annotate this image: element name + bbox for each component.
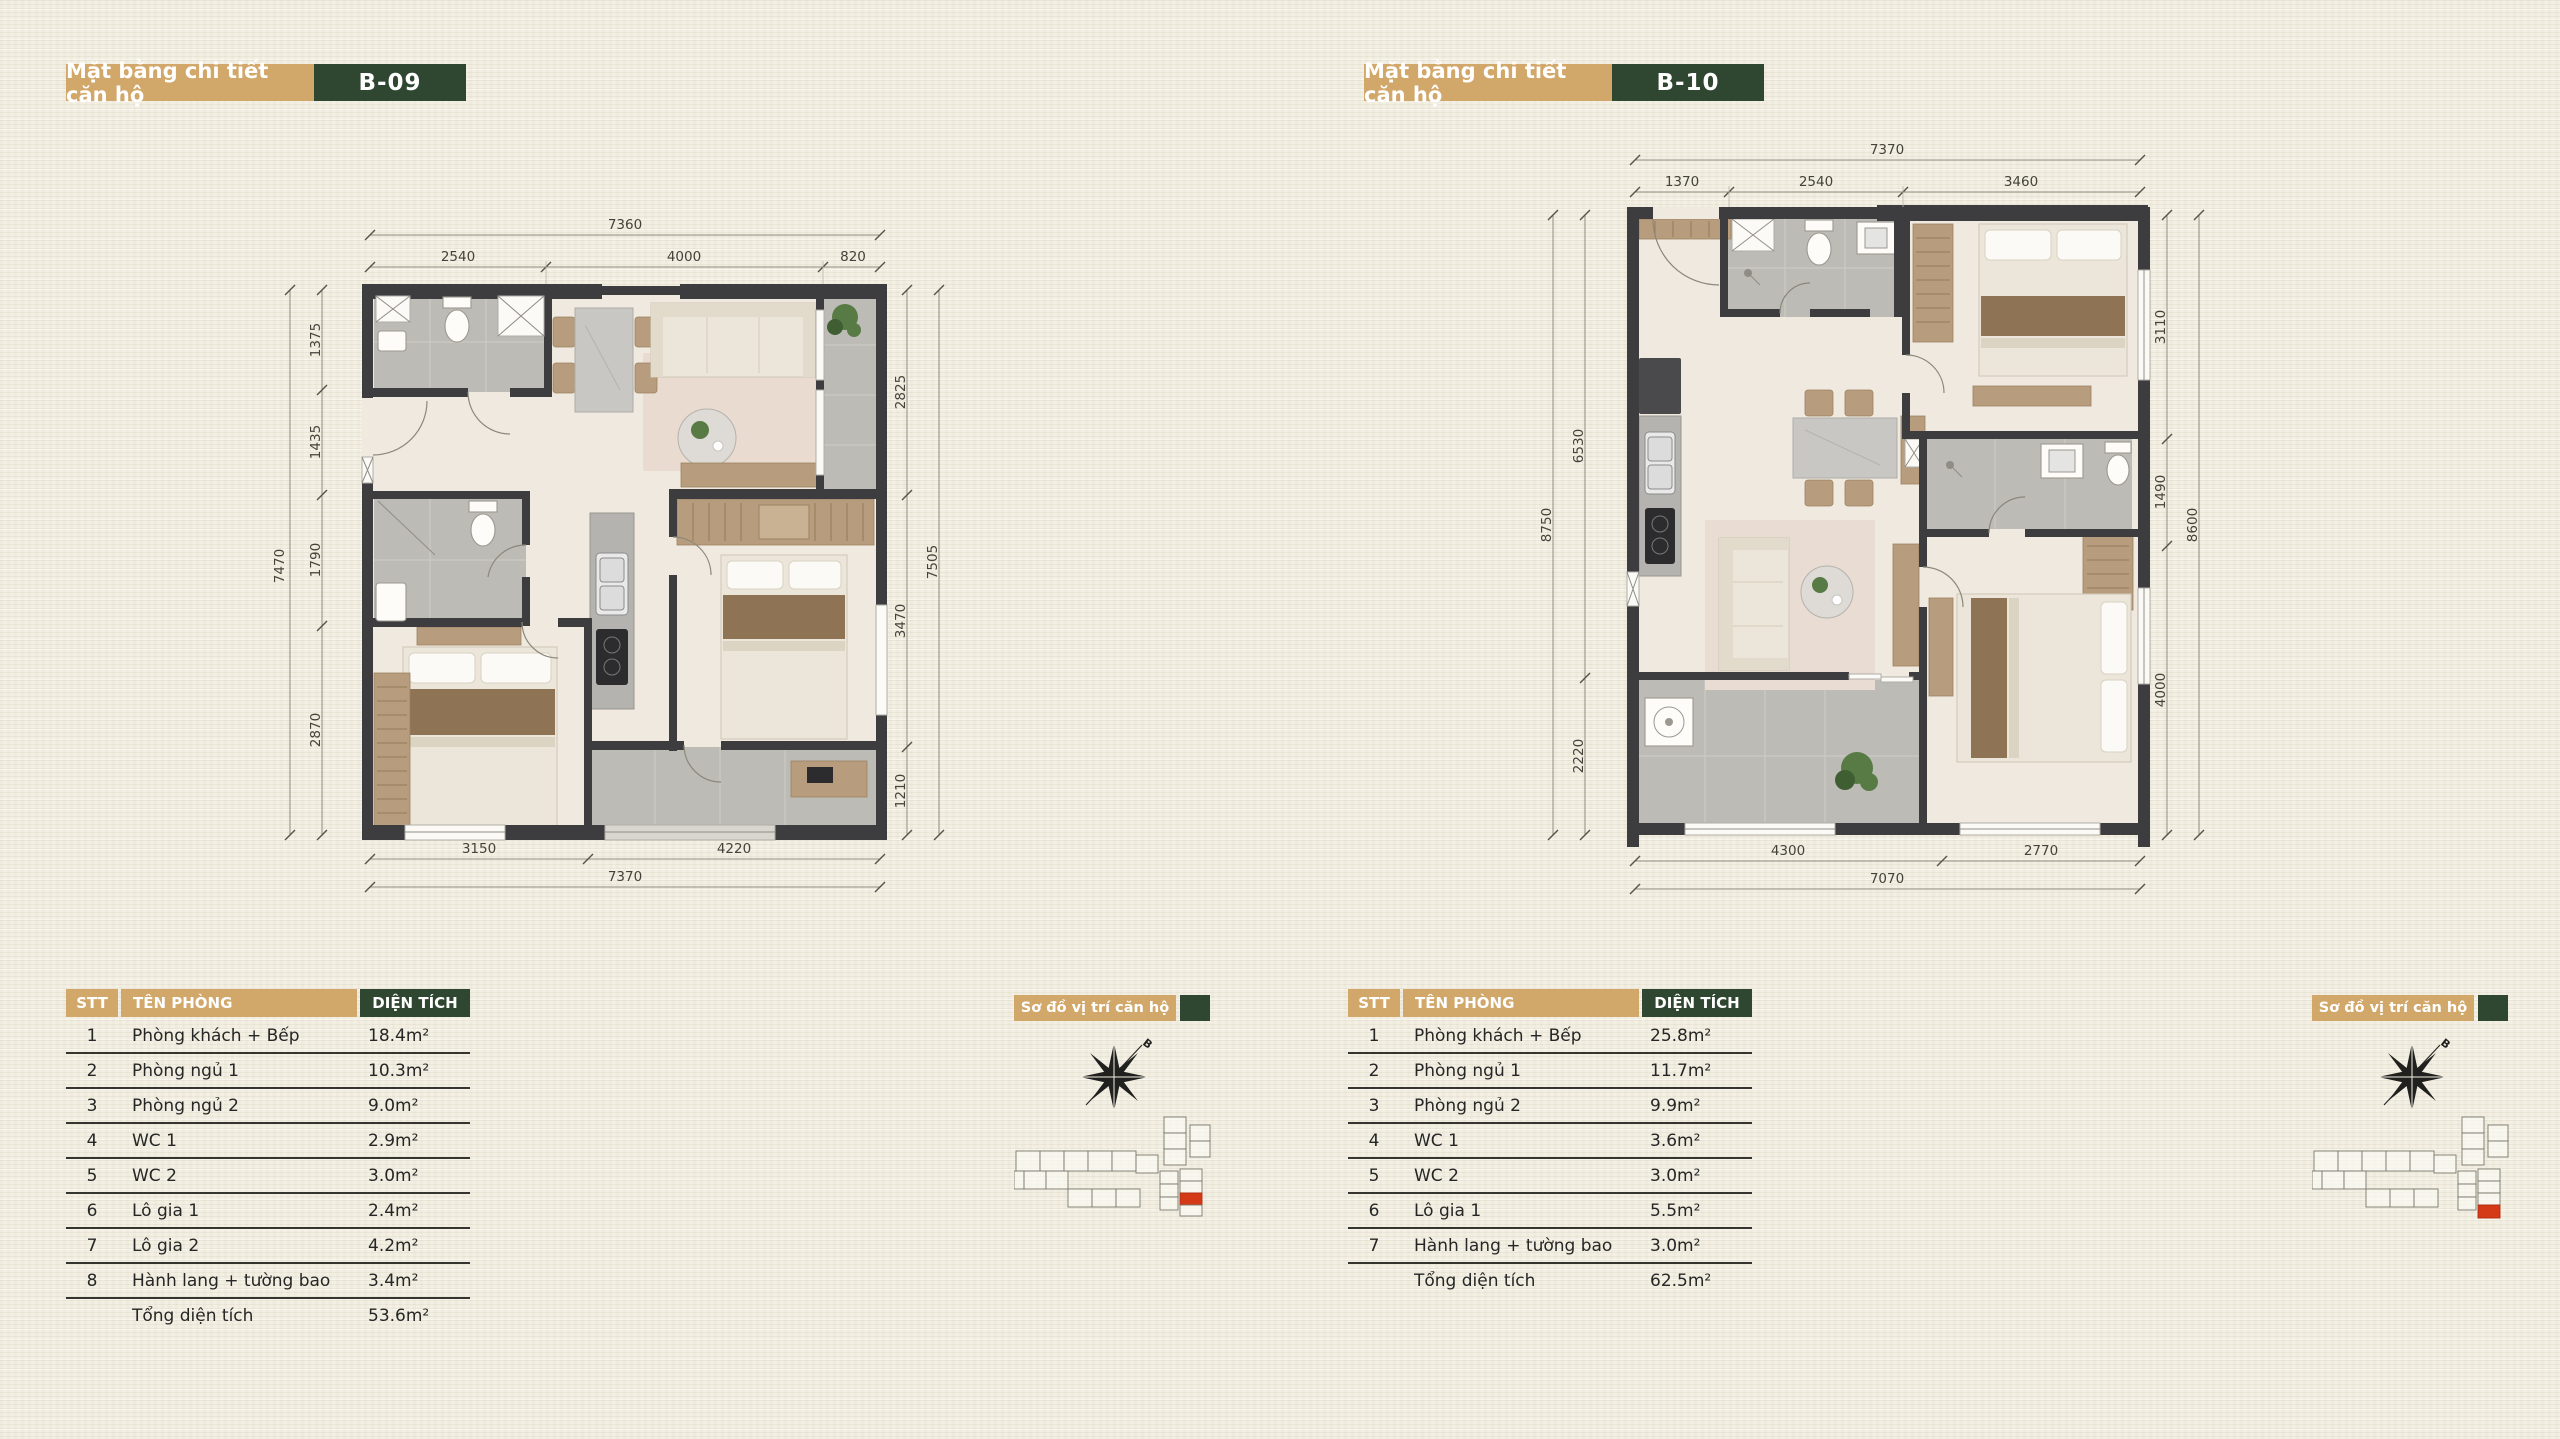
svg-text:3150: 3150 xyxy=(462,841,496,857)
table-total-row: Tổng diện tích53.6m² xyxy=(66,1299,470,1332)
svg-text:8750: 8750 xyxy=(1539,508,1555,542)
coffee-table xyxy=(1801,566,1853,618)
kitchen-sink xyxy=(600,558,624,582)
dining-table xyxy=(1793,418,1897,478)
svg-text:4300: 4300 xyxy=(1771,843,1805,859)
col-ten-phong: TÊN PHÒNG xyxy=(1403,989,1639,1017)
svg-text:1375: 1375 xyxy=(308,323,324,357)
svg-text:7360: 7360 xyxy=(608,217,642,233)
svg-text:7470: 7470 xyxy=(272,549,288,583)
plan-header-title: Mặt bằng chi tiết căn hộ xyxy=(66,64,314,101)
location-header: Sơ đồ vị trí căn hộ xyxy=(1014,995,1210,1021)
table-row: 6Lô gia 12.4m² xyxy=(66,1194,470,1229)
highlighted-unit xyxy=(1180,1193,1202,1205)
svg-text:3470: 3470 xyxy=(893,604,909,638)
svg-text:2540: 2540 xyxy=(1799,174,1833,190)
loggia-desk xyxy=(791,761,867,797)
kitchen xyxy=(590,513,634,709)
svg-text:2540: 2540 xyxy=(441,249,475,265)
floor-plan-b10: 7370 1370 2540 3460 8750 6530 2220 3110 … xyxy=(1505,120,2265,910)
highlighted-unit xyxy=(2478,1205,2500,1218)
location-title: Sơ đồ vị trí căn hộ xyxy=(2312,995,2474,1021)
table-row: 5WC 23.0m² xyxy=(66,1159,470,1194)
sofa xyxy=(1719,538,1789,670)
location-green-square xyxy=(1180,995,1210,1021)
svg-text:1435: 1435 xyxy=(308,425,324,459)
col-stt: STT xyxy=(66,989,118,1017)
bedroom1-bed xyxy=(403,647,557,831)
table-total-row: Tổng diện tích62.5m² xyxy=(1348,1264,1752,1297)
table-row: 3Phòng ngủ 29.9m² xyxy=(1348,1089,1752,1124)
table-row: 6Lô gia 15.5m² xyxy=(1348,1194,1752,1229)
svg-text:2870: 2870 xyxy=(308,713,324,747)
col-ten-phong: TÊN PHÒNG xyxy=(121,989,357,1017)
svg-text:1790: 1790 xyxy=(308,543,324,577)
table-row: 1Phòng khách + Bếp25.8m² xyxy=(1348,1019,1752,1054)
table-row: 3Phòng ngủ 29.0m² xyxy=(66,1089,470,1124)
sofa xyxy=(651,303,815,377)
tv-console xyxy=(1893,544,1919,666)
wc1-sink xyxy=(378,331,406,351)
area-table-b10: STT TÊN PHÒNG DIỆN TÍCH 1Phòng khách + B… xyxy=(1348,989,1752,1297)
site-plan-b09 xyxy=(1014,1115,1254,1219)
svg-text:820: 820 xyxy=(840,249,866,265)
svg-text:2825: 2825 xyxy=(893,375,909,409)
plan-header-b09: Mặt bằng chi tiết căn hộ B-09 xyxy=(66,64,466,101)
toilet-bowl xyxy=(445,310,469,342)
table-row: 7Hành lang + tường bao3.0m² xyxy=(1348,1229,1752,1264)
bedroom1-dresser xyxy=(1973,386,2091,406)
svg-text:8600: 8600 xyxy=(2185,508,2201,542)
area-table-b09: STT TÊN PHÒNG DIỆN TÍCH 1Phòng khách + B… xyxy=(66,989,470,1332)
compass-north-label: B xyxy=(1140,1036,1155,1051)
svg-text:7505: 7505 xyxy=(925,545,941,579)
floor-plan-b09: 7360 2540 4000 820 7470 1375 1435 1790 2… xyxy=(255,205,1015,905)
col-dien-tich: DIỆN TÍCH xyxy=(360,989,470,1017)
plan-header-unit-code: B-10 xyxy=(1612,64,1764,101)
table-row: 2Phòng ngủ 110.3m² xyxy=(66,1054,470,1089)
kitchen-sink xyxy=(1648,437,1672,461)
svg-text:7370: 7370 xyxy=(1870,142,1904,158)
compass-north-label: B xyxy=(2438,1036,2453,1051)
svg-text:7370: 7370 xyxy=(608,869,642,885)
fridge xyxy=(1639,358,1681,414)
svg-text:4000: 4000 xyxy=(667,249,701,265)
svg-text:2770: 2770 xyxy=(2024,843,2058,859)
kitchen xyxy=(1639,358,1681,576)
bedroom2-wardrobe xyxy=(677,499,874,545)
plan-header-unit-code: B-09 xyxy=(314,64,466,101)
toilet-tank xyxy=(443,297,471,308)
table-row: 4WC 13.6m² xyxy=(1348,1124,1752,1159)
location-widget-b10: Sơ đồ vị trí căn hộ B xyxy=(2312,995,2552,1021)
table-row: 1Phòng khách + Bếp18.4m² xyxy=(66,1019,470,1054)
table-header: STT TÊN PHÒNG DIỆN TÍCH xyxy=(66,989,470,1017)
svg-text:4220: 4220 xyxy=(717,841,751,857)
bedroom2-bed xyxy=(721,555,847,739)
svg-text:1490: 1490 xyxy=(2153,475,2169,509)
col-dien-tich: DIỆN TÍCH xyxy=(1642,989,1752,1017)
brochure-page: Mặt bằng chi tiết căn hộ B-09 xyxy=(0,0,2560,1439)
site-plan-b10 xyxy=(2312,1115,2552,1219)
table-header: STT TÊN PHÒNG DIỆN TÍCH xyxy=(1348,989,1752,1017)
bedroom2-dresser xyxy=(1929,598,1953,696)
plan-header-b10: Mặt bằng chi tiết căn hộ B-10 xyxy=(1364,64,1764,101)
svg-text:6530: 6530 xyxy=(1571,429,1587,463)
table-row: 5WC 23.0m² xyxy=(1348,1159,1752,1194)
location-widget-b09: Sơ đồ vị trí căn hộ B xyxy=(1014,995,1254,1021)
svg-text:3460: 3460 xyxy=(2004,174,2038,190)
col-stt: STT xyxy=(1348,989,1400,1017)
location-title: Sơ đồ vị trí căn hộ xyxy=(1014,995,1176,1021)
svg-text:2220: 2220 xyxy=(1571,739,1587,773)
location-green-square xyxy=(2478,995,2508,1021)
table-row: 4WC 12.9m² xyxy=(66,1124,470,1159)
coffee-table xyxy=(678,409,736,467)
plan-header-title: Mặt bằng chi tiết căn hộ xyxy=(1364,64,1612,101)
tv-console xyxy=(681,463,823,487)
table-row: 7Lô gia 24.2m² xyxy=(66,1229,470,1264)
svg-text:7070: 7070 xyxy=(1870,871,1904,887)
svg-text:4000: 4000 xyxy=(2153,673,2169,707)
table-row: 8Hành lang + tường bao3.4m² xyxy=(66,1264,470,1299)
bedroom1-dresser xyxy=(417,627,521,645)
compass-icon: B xyxy=(2360,1031,2470,1116)
svg-text:3110: 3110 xyxy=(2153,310,2169,344)
svg-text:1370: 1370 xyxy=(1665,174,1699,190)
bedroom1-wardrobe xyxy=(374,673,410,829)
wc2-sink xyxy=(376,583,406,621)
svg-text:1210: 1210 xyxy=(893,774,909,808)
location-header: Sơ đồ vị trí căn hộ xyxy=(2312,995,2508,1021)
table-row: 2Phòng ngủ 111.7m² xyxy=(1348,1054,1752,1089)
compass-icon: B xyxy=(1062,1031,1172,1116)
